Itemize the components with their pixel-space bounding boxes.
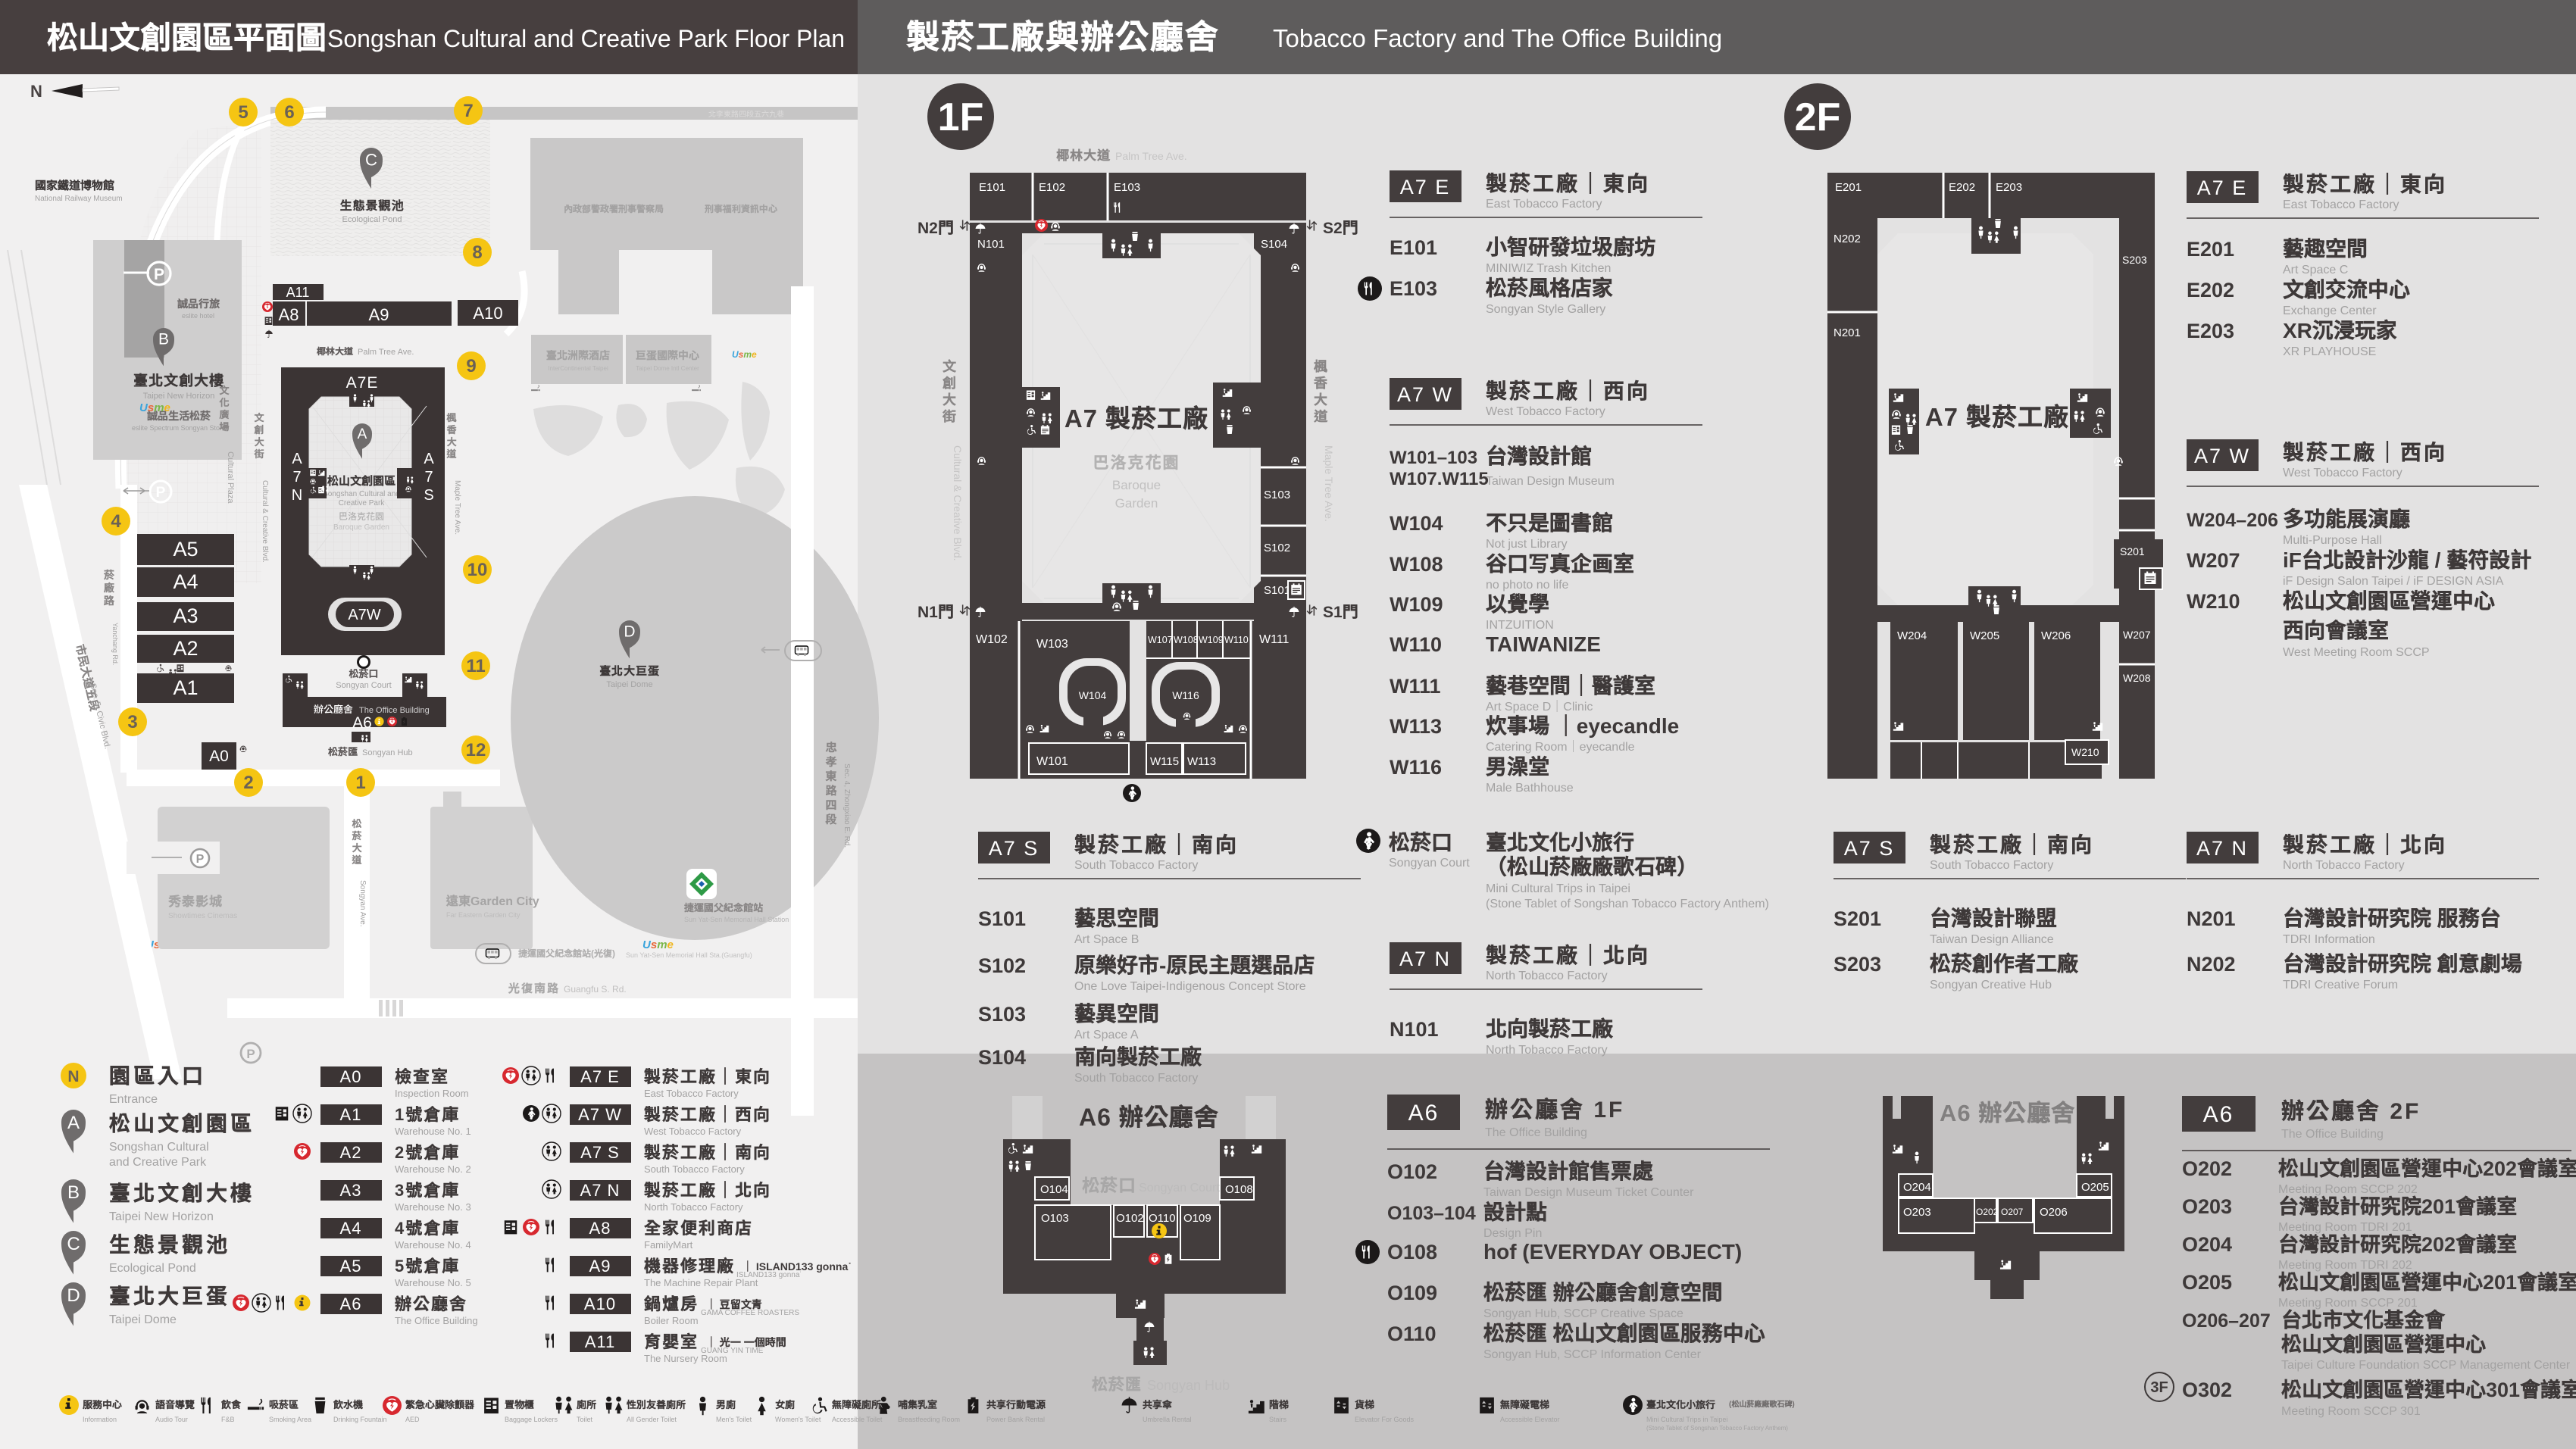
- svg-text:South Tobacco Factory: South Tobacco Factory: [1930, 859, 2053, 872]
- svg-text:A8: A8: [279, 305, 299, 324]
- svg-text:巨蛋國際中心: 巨蛋國際中心: [636, 349, 699, 361]
- svg-text:松山文創園區營運中心201會議室: 松山文創園區營運中心201會議室: [2278, 1271, 2576, 1294]
- svg-text:10: 10: [467, 560, 488, 580]
- svg-text:N: N: [30, 82, 42, 101]
- svg-text:女廁: 女廁: [775, 1399, 796, 1410]
- svg-text:階梯: 階梯: [1269, 1399, 1289, 1410]
- svg-text:Songyan Hub: Songyan Hub: [362, 748, 413, 757]
- svg-text:O204: O204: [2182, 1233, 2232, 1256]
- svg-text:North Tobacco Factory: North Tobacco Factory: [644, 1201, 743, 1213]
- svg-text:松菸口: 松菸口: [348, 668, 378, 679]
- svg-text:台灣設計研究院201會議室: 台灣設計研究院201會議室: [2278, 1195, 2517, 1218]
- svg-text:W107.W115: W107.W115: [1390, 469, 1489, 489]
- svg-text:台灣設計館: 台灣設計館: [1486, 445, 1592, 468]
- svg-text:Cultural & Creative Blvd.: Cultural & Creative Blvd.: [952, 445, 964, 561]
- svg-text:巴洛克花園: 巴洛克花園: [1093, 454, 1180, 472]
- svg-text:XR PLAYHOUSE: XR PLAYHOUSE: [2283, 345, 2376, 358]
- svg-text:無障礙廁所: 無障礙廁所: [832, 1399, 881, 1410]
- svg-text:W116: W116: [1172, 689, 1199, 701]
- svg-text:製菸工廠｜北向: 製菸工廠｜北向: [2282, 832, 2447, 857]
- svg-text:W207: W207: [2187, 549, 2240, 572]
- svg-text:捷運國父紀念館站(光復): 捷運國父紀念館站(光復): [518, 948, 615, 959]
- svg-text:O302: O302: [2182, 1379, 2232, 1401]
- svg-text:臺北洲際酒店: 臺北洲際酒店: [546, 349, 610, 361]
- svg-text:North Tobacco Factory: North Tobacco Factory: [1486, 970, 1608, 982]
- svg-text:Songshan Cultural and Creative: Songshan Cultural and Creative Park Floo…: [327, 25, 845, 52]
- svg-text:A7 S: A7 S: [1844, 837, 1895, 860]
- svg-text:O102: O102: [1387, 1160, 1437, 1183]
- svg-text:iF台北設計沙龍 / 藝符設計: iF台北設計沙龍 / 藝符設計: [2283, 548, 2531, 572]
- svg-text:N201: N201: [2187, 907, 2236, 930]
- svg-text:East Tobacco Factory: East Tobacco Factory: [2283, 198, 2399, 211]
- svg-text:松山文創園區營運中心: 松山文創園區營運中心: [2282, 589, 2495, 613]
- svg-text:Women's Toilet: Women's Toilet: [775, 1416, 821, 1423]
- svg-text:N101: N101: [977, 238, 1005, 251]
- svg-text:Taipei Culture Foundation SCCP: Taipei Culture Foundation SCCP Managemen…: [2281, 1359, 2571, 1372]
- svg-text:One Love Taipei-Indigenous Con: One Love Taipei-Indigenous Concept Store: [1074, 980, 1306, 993]
- svg-text:Songyan Hub, SCCP Information: Songyan Hub, SCCP Information Center: [1483, 1348, 1702, 1361]
- svg-text:A9: A9: [589, 1257, 611, 1276]
- svg-text:E203: E203: [2187, 320, 2234, 342]
- svg-text:S103: S103: [1264, 489, 1290, 501]
- svg-text:W110: W110: [1224, 635, 1249, 645]
- svg-text:O103: O103: [1041, 1212, 1069, 1225]
- svg-text:置物櫃: 置物櫃: [505, 1399, 534, 1410]
- svg-text:W104: W104: [1079, 689, 1107, 701]
- svg-text:E202: E202: [1949, 181, 1975, 194]
- svg-text:The Office Building: The Office Building: [1485, 1126, 1587, 1139]
- svg-text:哺集乳室: 哺集乳室: [898, 1399, 937, 1410]
- svg-text:South Tobacco Factory: South Tobacco Factory: [1074, 859, 1198, 872]
- svg-text:W111: W111: [1390, 675, 1441, 698]
- svg-text:West Tobacco Factory: West Tobacco Factory: [1486, 405, 1605, 418]
- svg-text:W210: W210: [2071, 746, 2099, 758]
- svg-text:O206–207: O206–207: [2182, 1310, 2271, 1332]
- svg-text:P: P: [196, 853, 205, 866]
- svg-text:Meeting Room SCCP 202: Meeting Room SCCP 202: [2278, 1183, 2418, 1196]
- svg-text:E101: E101: [1390, 236, 1437, 259]
- svg-text:A7 E: A7 E: [2197, 176, 2248, 199]
- svg-text:O103–104: O103–104: [1387, 1203, 1476, 1224]
- svg-text:Mini Cultural Trips in Taipei: Mini Cultural Trips in Taipei: [1486, 882, 1630, 895]
- svg-text:S201: S201: [1834, 907, 1881, 930]
- svg-text:A3: A3: [340, 1181, 362, 1200]
- svg-text:北李東路四段五六九巷: 北李東路四段五六九巷: [708, 110, 784, 119]
- svg-text:TAIWANIZE: TAIWANIZE: [1486, 632, 1601, 656]
- svg-text:O202: O202: [1976, 1207, 1999, 1217]
- svg-text:FamilyMart: FamilyMart: [644, 1239, 693, 1251]
- svg-text:A7 W: A7 W: [578, 1105, 622, 1124]
- svg-text:O205: O205: [2182, 1271, 2232, 1294]
- svg-text:A6 辦公廳舍: A6 辦公廳舍: [1940, 1100, 2075, 1126]
- svg-text:S102: S102: [978, 954, 1026, 977]
- svg-text:Yanchang Rd.: Yanchang Rd.: [111, 623, 119, 665]
- svg-text:Art Space C: Art Space C: [2283, 264, 2348, 276]
- svg-text:Sec. 4, Zhongxiao E. Rd.: Sec. 4, Zhongxiao E. Rd.: [843, 764, 851, 848]
- svg-text:設計點: 設計點: [1483, 1201, 1547, 1224]
- svg-text:Songyan Hub, SCCP Creative Spa: Songyan Hub, SCCP Creative Space: [1483, 1307, 1683, 1320]
- svg-text:O108: O108: [1225, 1183, 1253, 1196]
- svg-text:Baroque Garden: Baroque Garden: [333, 523, 389, 532]
- svg-text:A0: A0: [340, 1067, 362, 1086]
- svg-text:12: 12: [466, 740, 486, 760]
- svg-text:製菸工廠｜東向: 製菸工廠｜東向: [2282, 172, 2447, 196]
- svg-text:Maple Tree Ave.: Maple Tree Ave.: [1323, 445, 1335, 522]
- svg-text:Multi-Purpose Hall: Multi-Purpose Hall: [2283, 534, 2382, 547]
- svg-text:S2門: S2門: [1323, 220, 1358, 237]
- svg-text:製菸工廠｜西向: 製菸工廠｜西向: [2282, 440, 2447, 464]
- svg-text:W108: W108: [1390, 553, 1443, 576]
- svg-text:A7E: A7E: [346, 374, 379, 392]
- svg-text:生態景觀池: 生態景觀池: [339, 198, 404, 213]
- svg-text:Toilet: Toilet: [577, 1416, 593, 1423]
- svg-text:男澡堂: 男澡堂: [1485, 755, 1549, 779]
- svg-text:台北市文化基金會: 台北市文化基金會: [2281, 1309, 2446, 1332]
- svg-text:3F: 3F: [2150, 1379, 2168, 1396]
- svg-text:National Railway Museum: National Railway Museum: [35, 195, 123, 203]
- svg-text:W111: W111: [1259, 633, 1290, 646]
- svg-text:S104: S104: [978, 1046, 1026, 1069]
- svg-text:A: A: [67, 1113, 80, 1133]
- svg-text:松菸大道: 松菸大道: [351, 818, 362, 866]
- svg-text:North Tobacco Factory: North Tobacco Factory: [1486, 1044, 1608, 1057]
- svg-text:South Tobacco Factory: South Tobacco Factory: [644, 1163, 745, 1175]
- svg-text:A4: A4: [173, 570, 198, 593]
- svg-text:INTZUITION: INTZUITION: [1486, 619, 1554, 632]
- svg-text:Baggage Lockers: Baggage Lockers: [505, 1416, 558, 1423]
- svg-text:Art Space B: Art Space B: [1074, 933, 1139, 946]
- svg-text:W102: W102: [976, 633, 1008, 646]
- svg-text:W113: W113: [1390, 715, 1442, 738]
- svg-text:松菸匯 辦公廳舍創意空間: 松菸匯 辦公廳舍創意空間: [1483, 1281, 1723, 1304]
- svg-text:A7 W: A7 W: [2194, 445, 2250, 467]
- svg-text:廁所: 廁所: [576, 1399, 596, 1410]
- svg-text:西向會議室: 西向會議室: [2283, 619, 2389, 642]
- svg-text:AED: AED: [405, 1416, 420, 1423]
- svg-text:製菸工廠與辦公廳舍: 製菸工廠與辦公廳舍: [905, 19, 1220, 56]
- svg-text:West Tobacco Factory: West Tobacco Factory: [2283, 467, 2402, 479]
- svg-text:台灣設計研究院 服務台: 台灣設計研究院 服務台: [2283, 907, 2501, 930]
- svg-text:O110: O110: [1387, 1323, 1436, 1345]
- svg-text:生態景觀池: 生態景觀池: [109, 1233, 230, 1257]
- svg-text:A2: A2: [340, 1143, 362, 1162]
- svg-text:5號倉庫: 5號倉庫: [395, 1257, 460, 1276]
- svg-text:W103: W103: [1036, 638, 1068, 651]
- svg-text:松山文創園區平面圖: 松山文創園區平面圖: [47, 20, 327, 55]
- svg-text:Warehouse No. 4: Warehouse No. 4: [395, 1239, 471, 1251]
- svg-text:1號倉庫: 1號倉庫: [395, 1105, 460, 1124]
- svg-text:A6: A6: [2203, 1102, 2234, 1127]
- svg-text:國家鐵道博物館: 國家鐵道博物館: [35, 179, 114, 192]
- svg-text:A3: A3: [173, 604, 198, 627]
- svg-text:共享傘: 共享傘: [1143, 1399, 1173, 1410]
- svg-text:MINIWIZ Trash Kitchen: MINIWIZ Trash Kitchen: [1486, 262, 1611, 275]
- svg-text:8: 8: [472, 242, 482, 263]
- svg-text:W205: W205: [1970, 629, 1999, 642]
- svg-text:TDRI Information: TDRI Information: [2283, 933, 2375, 946]
- svg-text:Palm Tree Ave.: Palm Tree Ave.: [358, 348, 414, 357]
- svg-text:內政部警政署刑事警察局: 內政部警政署刑事警察局: [564, 204, 664, 214]
- svg-text:秀泰影城: 秀泰影城: [167, 894, 223, 909]
- svg-text:S101: S101: [1264, 584, 1290, 597]
- svg-text:Sun Yat-Sen Memorial Hall Sta.: Sun Yat-Sen Memorial Hall Sta.(Guangfu): [626, 951, 752, 959]
- svg-text:A8: A8: [589, 1219, 611, 1238]
- svg-text:臺北文化小旅行: 臺北文化小旅行: [1486, 831, 1634, 854]
- svg-text:TDRI Creative Forum: TDRI Creative Forum: [2283, 979, 2398, 992]
- svg-text:eslite hotel: eslite hotel: [182, 312, 214, 320]
- svg-text:A1: A1: [340, 1105, 362, 1124]
- svg-text:9: 9: [466, 356, 476, 376]
- svg-text:East Tobacco Factory: East Tobacco Factory: [644, 1088, 739, 1099]
- svg-text:(Stone Tablet of Songshan Toba: (Stone Tablet of Songshan Tobacco Factor…: [1646, 1425, 1788, 1432]
- svg-text:2F: 2F: [1795, 95, 1841, 139]
- svg-text:Entrance: Entrance: [109, 1093, 158, 1106]
- svg-text:Usme: Usme: [139, 401, 170, 414]
- svg-text:藝趣空間: 藝趣空間: [2282, 237, 2368, 261]
- svg-text:Maple Tree Ave.: Maple Tree Ave.: [453, 480, 461, 535]
- svg-text:A7 N: A7 N: [580, 1181, 621, 1200]
- svg-text:男廁: 男廁: [716, 1399, 736, 1410]
- svg-text:椰林大道: 椰林大道: [1056, 148, 1111, 163]
- svg-text:E203: E203: [1996, 181, 2022, 194]
- svg-text:松菸口: 松菸口: [1081, 1176, 1136, 1195]
- svg-text:（松山菸廠廠歌石碑）: （松山菸廠廠歌石碑）: [1486, 855, 1698, 879]
- svg-text:製菸工廠｜南向: 製菸工廠｜南向: [1929, 832, 2094, 857]
- svg-text:S203: S203: [2122, 254, 2147, 266]
- svg-text:辦公廳舍: 辦公廳舍: [395, 1294, 467, 1313]
- svg-text:W101–103: W101–103: [1390, 448, 1477, 468]
- svg-text:A7 E: A7 E: [1400, 176, 1451, 198]
- svg-text:2: 2: [243, 773, 253, 793]
- svg-text:3號倉庫: 3號倉庫: [395, 1181, 460, 1200]
- svg-text:InterContinental Taipei: InterContinental Taipei: [548, 365, 608, 372]
- svg-text:N202: N202: [1834, 233, 1861, 245]
- svg-text:W208: W208: [2123, 672, 2151, 684]
- svg-text:N101: N101: [1390, 1018, 1439, 1041]
- svg-text:2號倉庫: 2號倉庫: [395, 1143, 460, 1162]
- svg-text:3: 3: [127, 712, 137, 732]
- svg-text:XR沉浸玩家: XR沉浸玩家: [2283, 319, 2397, 342]
- svg-text:Stairs: Stairs: [1269, 1416, 1287, 1423]
- svg-text:Songshan Cultural and: Songshan Cultural and: [323, 490, 400, 498]
- svg-text:製菸工廠｜南向: 製菸工廠｜南向: [1074, 832, 1239, 857]
- svg-text:Art Space A: Art Space A: [1074, 1029, 1139, 1041]
- svg-text:Audio Tour: Audio Tour: [155, 1416, 188, 1423]
- svg-text:Songyan Creative Hub: Songyan Creative Hub: [1930, 979, 2052, 992]
- svg-text:GAMA COFFEE ROASTERS: GAMA COFFEE ROASTERS: [701, 1309, 799, 1317]
- svg-text:and Creative Park: and Creative Park: [109, 1156, 207, 1169]
- svg-text:Power Bank Rental: Power Bank Rental: [986, 1416, 1045, 1423]
- svg-text:Breastfeeding Room: Breastfeeding Room: [898, 1416, 960, 1423]
- svg-text:Taiwan Design Museum: Taiwan Design Museum: [1486, 475, 1615, 488]
- svg-text:刑事福利資訊中心: 刑事福利資訊中心: [705, 203, 778, 214]
- svg-text:Drinking Fountain: Drinking Fountain: [333, 1416, 387, 1423]
- svg-text:遠東Garden City: 遠東Garden City: [446, 894, 539, 908]
- svg-text:Taipei New Horizon: Taipei New Horizon: [143, 392, 215, 401]
- svg-text:5: 5: [238, 102, 248, 123]
- svg-text:椰林大道: 椰林大道: [317, 346, 354, 357]
- svg-text:Usme: Usme: [732, 349, 757, 360]
- svg-text:N2門: N2門: [918, 220, 954, 237]
- svg-text:E101: E101: [979, 181, 1005, 194]
- svg-text:O205: O205: [2081, 1181, 2109, 1194]
- svg-text:Songshan Cultural: Songshan Cultural: [109, 1141, 209, 1154]
- svg-text:A5: A5: [340, 1257, 362, 1276]
- svg-text:炊事場 ｜eyecandle: 炊事場 ｜eyecandle: [1486, 714, 1679, 738]
- svg-text:W204–206: W204–206: [2187, 510, 2278, 531]
- svg-text:W110: W110: [1390, 633, 1442, 656]
- svg-text:Male Bathhouse: Male Bathhouse: [1486, 782, 1574, 795]
- svg-text:W109: W109: [1199, 635, 1224, 645]
- svg-text:無障礙電梯: 無障礙電梯: [1500, 1399, 1549, 1410]
- svg-text:D: D: [624, 623, 635, 641]
- svg-text:E102: E102: [1039, 181, 1065, 194]
- svg-text:1: 1: [355, 773, 365, 793]
- svg-text:捷運國父紀念館站: 捷運國父紀念館站: [683, 902, 764, 913]
- svg-text:辦公廳舍 1F: 辦公廳舍 1F: [1485, 1097, 1624, 1123]
- svg-text:藝巷空間｜醫護室: 藝巷空間｜醫護室: [1485, 673, 1655, 698]
- svg-text:S103: S103: [978, 1003, 1026, 1026]
- svg-text:小智研發垃圾廚坊: 小智研發垃圾廚坊: [1486, 236, 1655, 259]
- svg-text:Songyan Court: Songyan Court: [1389, 857, 1470, 870]
- svg-text:Tobacco Factory and The Office: Tobacco Factory and The Office Building: [1273, 24, 1722, 52]
- svg-text:W109: W109: [1390, 593, 1443, 616]
- svg-text:A7 N: A7 N: [2196, 837, 2248, 860]
- svg-text:Far Eastern Garden City: Far Eastern Garden City: [446, 911, 521, 919]
- svg-text:Songyan Ave.: Songyan Ave.: [358, 880, 367, 927]
- svg-text:Showtimes Cinemas: Showtimes Cinemas: [168, 912, 237, 920]
- svg-text:4: 4: [111, 511, 121, 532]
- svg-text:飲食: 飲食: [220, 1399, 242, 1410]
- svg-text:A6: A6: [352, 714, 372, 732]
- svg-text:W116: W116: [1390, 756, 1442, 779]
- svg-text:多功能展演廳: 多功能展演廳: [2283, 507, 2410, 531]
- svg-text:Usme: Usme: [642, 938, 674, 951]
- svg-text:B: B: [67, 1182, 80, 1203]
- svg-text:N1門: N1門: [918, 604, 954, 621]
- svg-text:W210: W210: [2187, 590, 2240, 613]
- svg-text:W113: W113: [1187, 755, 1216, 768]
- svg-text:語音導覽: 語音導覽: [155, 1399, 195, 1410]
- svg-text:原樂好市-原民主題選品店: 原樂好市-原民主題選品店: [1074, 954, 1315, 977]
- svg-text:O104: O104: [1040, 1183, 1068, 1196]
- svg-text:W206: W206: [2041, 629, 2071, 642]
- svg-text:A2: A2: [173, 637, 198, 660]
- svg-text:S101: S101: [978, 907, 1026, 930]
- svg-text:Meeting Room SCCP 201: Meeting Room SCCP 201: [2278, 1297, 2418, 1310]
- svg-text:Accessible Elevator: Accessible Elevator: [1500, 1416, 1560, 1423]
- svg-text:Songyan Hub: Songyan Hub: [1147, 1378, 1230, 1393]
- svg-text:Art Space D｜Clinic: Art Space D｜Clinic: [1486, 700, 1593, 714]
- svg-text:Sun Yat-Sen Memorial Hall Stat: Sun Yat-Sen Memorial Hall Station: [684, 916, 789, 923]
- svg-text:Taipei Dome: Taipei Dome: [109, 1313, 177, 1326]
- svg-text:N: N: [67, 1068, 79, 1085]
- svg-text:繁急心臟除顫器: 繁急心臟除顫器: [405, 1399, 475, 1410]
- svg-text:Meeting Room TDRI 202: Meeting Room TDRI 202: [2278, 1259, 2412, 1272]
- svg-text:飲水機: 飲水機: [333, 1399, 363, 1410]
- svg-text:P: P: [246, 1047, 255, 1061]
- svg-text:A10: A10: [473, 304, 502, 323]
- svg-text:A6: A6: [340, 1294, 362, 1313]
- svg-text:園區入口: 園區入口: [109, 1064, 206, 1088]
- svg-text:Ecological Pond: Ecological Pond: [342, 215, 402, 224]
- svg-text:Cultural Plaza: Cultural Plaza: [226, 451, 235, 504]
- svg-text:O206: O206: [2040, 1206, 2068, 1219]
- svg-text:松山文創園區: 松山文創園區: [108, 1112, 255, 1135]
- svg-text:Men's Toilet: Men's Toilet: [716, 1416, 752, 1423]
- svg-text:O203: O203: [1903, 1206, 1931, 1219]
- svg-text:(松山菸廠廠歌石碑): (松山菸廠廠歌石碑): [1729, 1399, 1795, 1409]
- svg-text:no photo no life: no photo no life: [1486, 579, 1569, 592]
- svg-text:West Meeting Room SCCP: West Meeting Room SCCP: [2283, 646, 2430, 659]
- svg-text:iF Design Salon Taipei / iF DE: iF Design Salon Taipei / iF DESIGN ASIA: [2283, 575, 2504, 588]
- svg-text:Creative Park: Creative Park: [339, 499, 386, 507]
- svg-text:West Tobacco Factory: West Tobacco Factory: [644, 1126, 742, 1137]
- svg-text:A7 S: A7 S: [580, 1143, 620, 1162]
- svg-text:E201: E201: [2187, 238, 2234, 261]
- svg-text:松菸風格店家: 松菸風格店家: [1485, 276, 1613, 300]
- svg-text:A7W: A7W: [348, 607, 380, 623]
- svg-text:A7S: A7S: [424, 451, 434, 504]
- svg-text:以覺學: 以覺學: [1485, 592, 1549, 616]
- svg-text:檢查室: 檢查室: [395, 1067, 449, 1086]
- svg-text:製菸工廠｜北向: 製菸工廠｜北向: [643, 1181, 771, 1200]
- svg-text:Garden: Garden: [1115, 496, 1158, 511]
- svg-text:Design Pin: Design Pin: [1483, 1227, 1542, 1240]
- svg-text:Baroque: Baroque: [1112, 478, 1161, 492]
- svg-text:製菸工廠｜北向: 製菸工廠｜北向: [1485, 943, 1650, 967]
- svg-text:A7N: A7N: [292, 451, 303, 504]
- svg-text:松山文創園區營運中心202會議室: 松山文創園區營運中心202會議室: [2278, 1157, 2576, 1180]
- svg-text:育嬰室: 育嬰室: [644, 1332, 699, 1351]
- svg-text:吸菸區: 吸菸區: [269, 1399, 299, 1410]
- svg-text:O108: O108: [1387, 1241, 1437, 1263]
- svg-text:ISLAND133 gonna˙: ISLAND133 gonna˙: [736, 1271, 802, 1279]
- svg-text:O207: O207: [2001, 1207, 2024, 1217]
- svg-text:4號倉庫: 4號倉庫: [395, 1219, 460, 1238]
- svg-text:Taiwan Design Alliance: Taiwan Design Alliance: [1930, 933, 2054, 946]
- svg-text:Warehouse No. 5: Warehouse No. 5: [395, 1277, 471, 1288]
- svg-text:Smoking Area: Smoking Area: [269, 1416, 311, 1423]
- svg-text:A6: A6: [1408, 1101, 1440, 1126]
- svg-text:全家便利商店: 全家便利商店: [643, 1219, 753, 1238]
- svg-text:谷口写真企画室: 谷口写真企画室: [1485, 552, 1634, 576]
- svg-text:E202: E202: [2187, 279, 2234, 301]
- svg-text:S102: S102: [1264, 542, 1290, 554]
- svg-text:製菸工廠｜西向: 製菸工廠｜西向: [1485, 379, 1650, 403]
- svg-text:O102: O102: [1116, 1212, 1144, 1225]
- svg-text:S201: S201: [2120, 545, 2145, 557]
- svg-text:Inspection Room: Inspection Room: [395, 1088, 469, 1099]
- svg-text:O202: O202: [2182, 1157, 2232, 1180]
- svg-text:E103: E103: [1390, 277, 1437, 300]
- svg-text:W108: W108: [1174, 635, 1199, 645]
- svg-text:The Office Building: The Office Building: [2281, 1128, 2384, 1141]
- svg-text:N202: N202: [2187, 953, 2236, 976]
- svg-text:Songyan Style Gallery: Songyan Style Gallery: [1486, 303, 1605, 316]
- svg-text:11: 11: [466, 656, 485, 676]
- svg-text:辦公廳舍 2F: 辦公廳舍 2F: [2281, 1098, 2421, 1124]
- svg-text:Songyan Court: Songyan Court: [336, 681, 391, 690]
- svg-text:文創大街: 文創大街: [253, 412, 264, 460]
- svg-text:製菸工廠｜東向: 製菸工廠｜東向: [643, 1067, 771, 1086]
- svg-text:Umbrella Rental: Umbrella Rental: [1143, 1416, 1192, 1423]
- svg-text:臺北大巨蛋: 臺北大巨蛋: [109, 1285, 230, 1308]
- svg-text:服務中心: 服務中心: [83, 1399, 122, 1410]
- svg-text:W104: W104: [1390, 512, 1443, 535]
- svg-text:A5: A5: [173, 538, 198, 561]
- svg-text:性別友善廁所: 性別友善廁所: [626, 1399, 686, 1410]
